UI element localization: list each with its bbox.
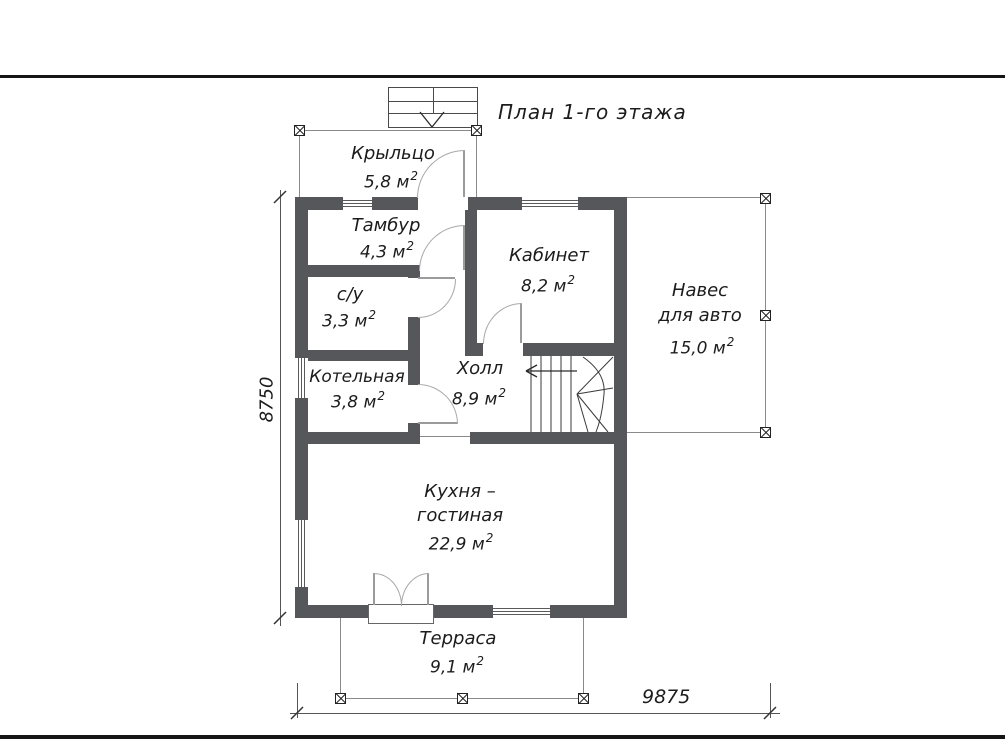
room-label-carport-line1: Навес <box>620 281 780 301</box>
window-tambour <box>343 197 372 210</box>
floor-plan-sheet: План 1-го этажа <box>0 0 1005 754</box>
column-marker <box>578 693 589 704</box>
room-label-porch: Крыльцо <box>313 144 473 164</box>
room-label-office: Кабинет <box>469 246 629 266</box>
wall-office-south-left <box>465 343 483 356</box>
dimension-line-width <box>290 713 780 714</box>
room-label-hall: Холл <box>400 359 560 379</box>
window-kitchen-west <box>295 520 308 587</box>
bottom-rule <box>0 735 1005 739</box>
entry-steps <box>388 87 478 128</box>
window-office <box>522 197 578 210</box>
wall-tambour-south <box>295 265 420 277</box>
wall-office-south-right <box>523 343 627 356</box>
room-area-tambour: 4,3 м2 <box>307 237 467 263</box>
wall-corridor-west <box>408 423 420 444</box>
office-door-swing <box>483 303 522 344</box>
french-door-swing-left <box>374 573 402 606</box>
room-area-kitchen: 22,9 м2 <box>381 529 541 555</box>
room-label-tambour: Тамбур <box>306 216 466 236</box>
window-kitchen-south <box>493 605 550 618</box>
wall-kitchen-north-left <box>295 432 418 444</box>
room-area-wc: 3,3 м2 <box>269 306 429 332</box>
entry-step-line <box>389 113 477 114</box>
room-label-carport-line2: для авто <box>620 306 780 326</box>
wall-exterior-bottom <box>295 605 627 618</box>
top-rule <box>0 75 1005 78</box>
page-title: План 1-го этажа <box>498 100 687 124</box>
wall-kitchen-north-right <box>470 432 627 444</box>
room-label-wc: с/у <box>270 285 430 305</box>
column-marker <box>760 193 771 204</box>
column-marker <box>335 693 346 704</box>
room-label-terrace: Терраса <box>378 629 538 649</box>
room-area-terrace: 9,1 м2 <box>377 652 537 678</box>
porch-outline <box>476 130 477 197</box>
terrace-outline <box>583 618 584 698</box>
column-marker <box>294 125 305 136</box>
dimension-extension <box>770 683 771 718</box>
room-label-kitchen-line2: гостиная <box>380 506 540 526</box>
room-area-carport: 15,0 м2 <box>622 333 782 359</box>
french-door-sill <box>368 604 434 624</box>
room-area-hall: 8,9 м2 <box>399 384 559 410</box>
porch-outline <box>299 130 477 131</box>
room-label-kitchen-line1: Кухня – <box>380 482 540 502</box>
terrace-outline <box>340 618 341 698</box>
column-marker <box>471 125 482 136</box>
dimension-label-height: 8750 <box>257 370 278 430</box>
carport-outline <box>627 197 766 198</box>
hall-kitchen-passage <box>420 436 470 437</box>
room-area-porch: 5,8 м2 <box>311 167 471 193</box>
column-marker <box>457 693 468 704</box>
entry-path-line <box>433 88 434 113</box>
dimension-extension <box>297 683 298 718</box>
french-door-swing-right <box>401 573 429 606</box>
entry-door-opening <box>418 197 468 210</box>
room-area-office: 8,2 м2 <box>468 271 628 297</box>
column-marker <box>760 427 771 438</box>
carport-outline <box>627 432 766 433</box>
dimension-label-width: 9875 <box>642 686 690 708</box>
porch-outline <box>299 130 300 197</box>
